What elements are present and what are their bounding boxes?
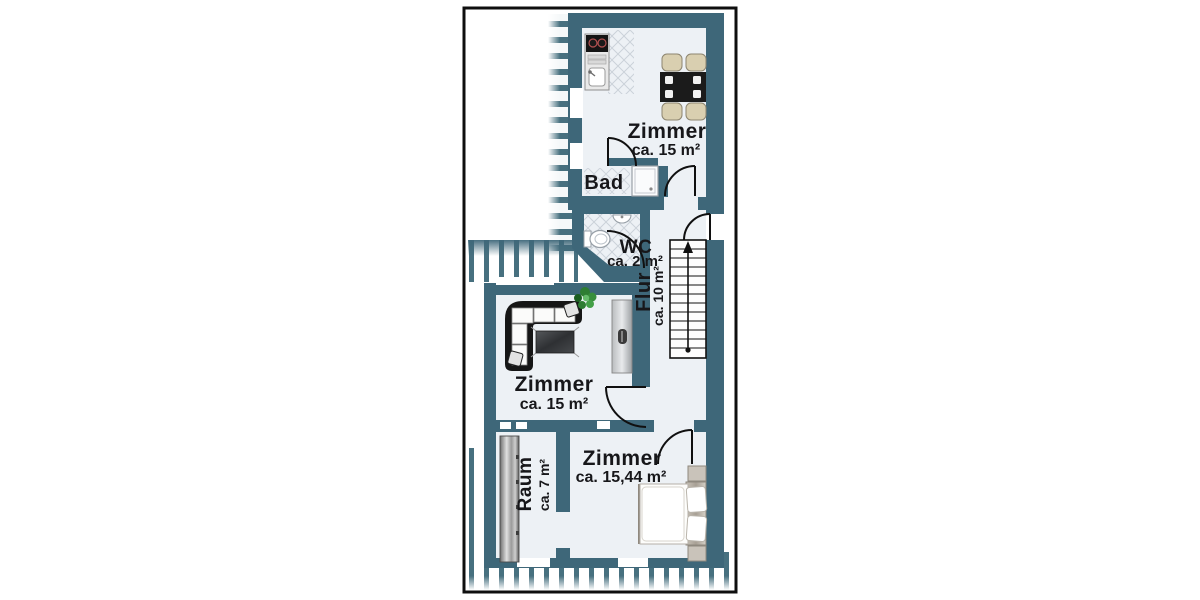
toilet-icon	[584, 231, 610, 248]
sideboard-icon	[612, 300, 632, 373]
hallway-extension-floor	[632, 387, 650, 420]
floor-plan-svg: Zimmer ca. 15 m² Bad WC ca. 2 m² Flur ca…	[0, 0, 1200, 600]
label-storage: Raum	[515, 457, 536, 512]
coffee-table-icon	[531, 327, 579, 357]
bad-door-opening	[582, 158, 608, 166]
window-bottom-2	[618, 558, 648, 567]
staircase-icon	[670, 240, 706, 358]
wall-mark-1	[500, 422, 511, 429]
label-hallway-area: ca. 10 m²	[650, 266, 666, 326]
bed-pillow-2	[686, 515, 707, 541]
sofa-pillow-2	[507, 351, 523, 367]
shower-icon	[632, 166, 658, 196]
label-storage-area: ca. 7 m²	[536, 459, 552, 511]
wall-mark-2	[516, 422, 527, 429]
label-top-room: Zimmer	[628, 120, 707, 143]
label-living: Zimmer	[515, 373, 594, 396]
window-top-left-1	[570, 88, 583, 118]
label-living-area: ca. 15 m²	[520, 396, 588, 413]
toproom-door-opening	[664, 197, 698, 210]
bed-pillow-1	[686, 486, 707, 512]
storage-bedroom-opening	[556, 512, 570, 548]
window-bottom-1	[517, 558, 550, 567]
hatch-mid-band	[468, 240, 578, 282]
label-bedroom: Zimmer	[583, 447, 662, 470]
label-bath: Bad	[584, 172, 623, 194]
window-top-left-2	[570, 143, 583, 169]
floor-plan-page: Zimmer ca. 15 m² Bad WC ca. 2 m² Flur ca…	[0, 0, 1200, 600]
label-top-room-area: ca. 15 m²	[632, 142, 700, 159]
entry-door-opening	[706, 214, 724, 240]
window-living-top	[496, 277, 554, 285]
wall-mark-3	[597, 421, 610, 429]
kitchen-tiles	[608, 30, 634, 94]
kitchen-unit-icon	[585, 34, 609, 90]
label-bedroom-area: ca. 15,44 m²	[576, 469, 667, 486]
